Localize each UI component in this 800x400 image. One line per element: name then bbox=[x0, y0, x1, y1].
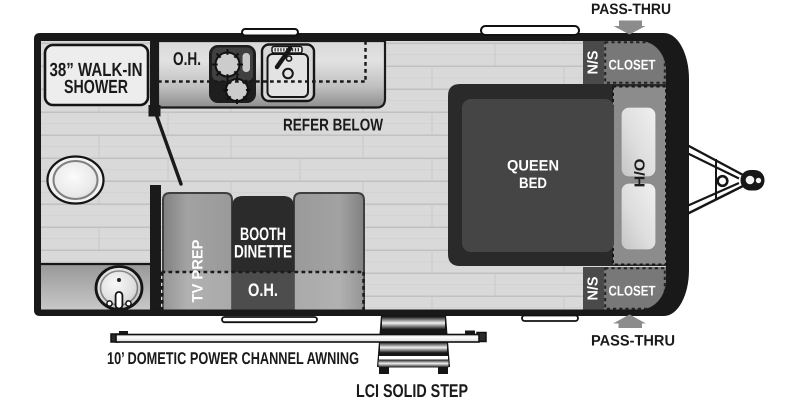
svg-text:BED: BED bbox=[519, 175, 547, 192]
svg-text:DINETTE: DINETTE bbox=[234, 242, 292, 262]
svg-text:10’ DOMETIC POWER CHANNEL AWNI: 10’ DOMETIC POWER CHANNEL AWNING bbox=[107, 349, 359, 368]
svg-text:PASS-THRU: PASS-THRU bbox=[591, 333, 675, 350]
svg-text:O.H.: O.H. bbox=[248, 280, 278, 300]
svg-text:QUEEN: QUEEN bbox=[507, 158, 559, 175]
svg-text:CLOSET: CLOSET bbox=[609, 57, 656, 73]
svg-text:TV PREP: TV PREP bbox=[190, 240, 207, 303]
svg-text:PASS-THRU: PASS-THRU bbox=[591, 1, 671, 18]
svg-text:REFER BELOW: REFER BELOW bbox=[283, 116, 384, 135]
svg-text:CLOSET: CLOSET bbox=[609, 283, 656, 299]
svg-text:LCI SOLID STEP: LCI SOLID STEP bbox=[356, 380, 468, 400]
svg-text:SHOWER: SHOWER bbox=[64, 77, 128, 98]
svg-text:N/S: N/S bbox=[586, 50, 602, 74]
svg-text:H/O: H/O bbox=[633, 159, 649, 188]
svg-text:N/S: N/S bbox=[586, 276, 602, 300]
svg-text:O.H.: O.H. bbox=[173, 48, 201, 69]
